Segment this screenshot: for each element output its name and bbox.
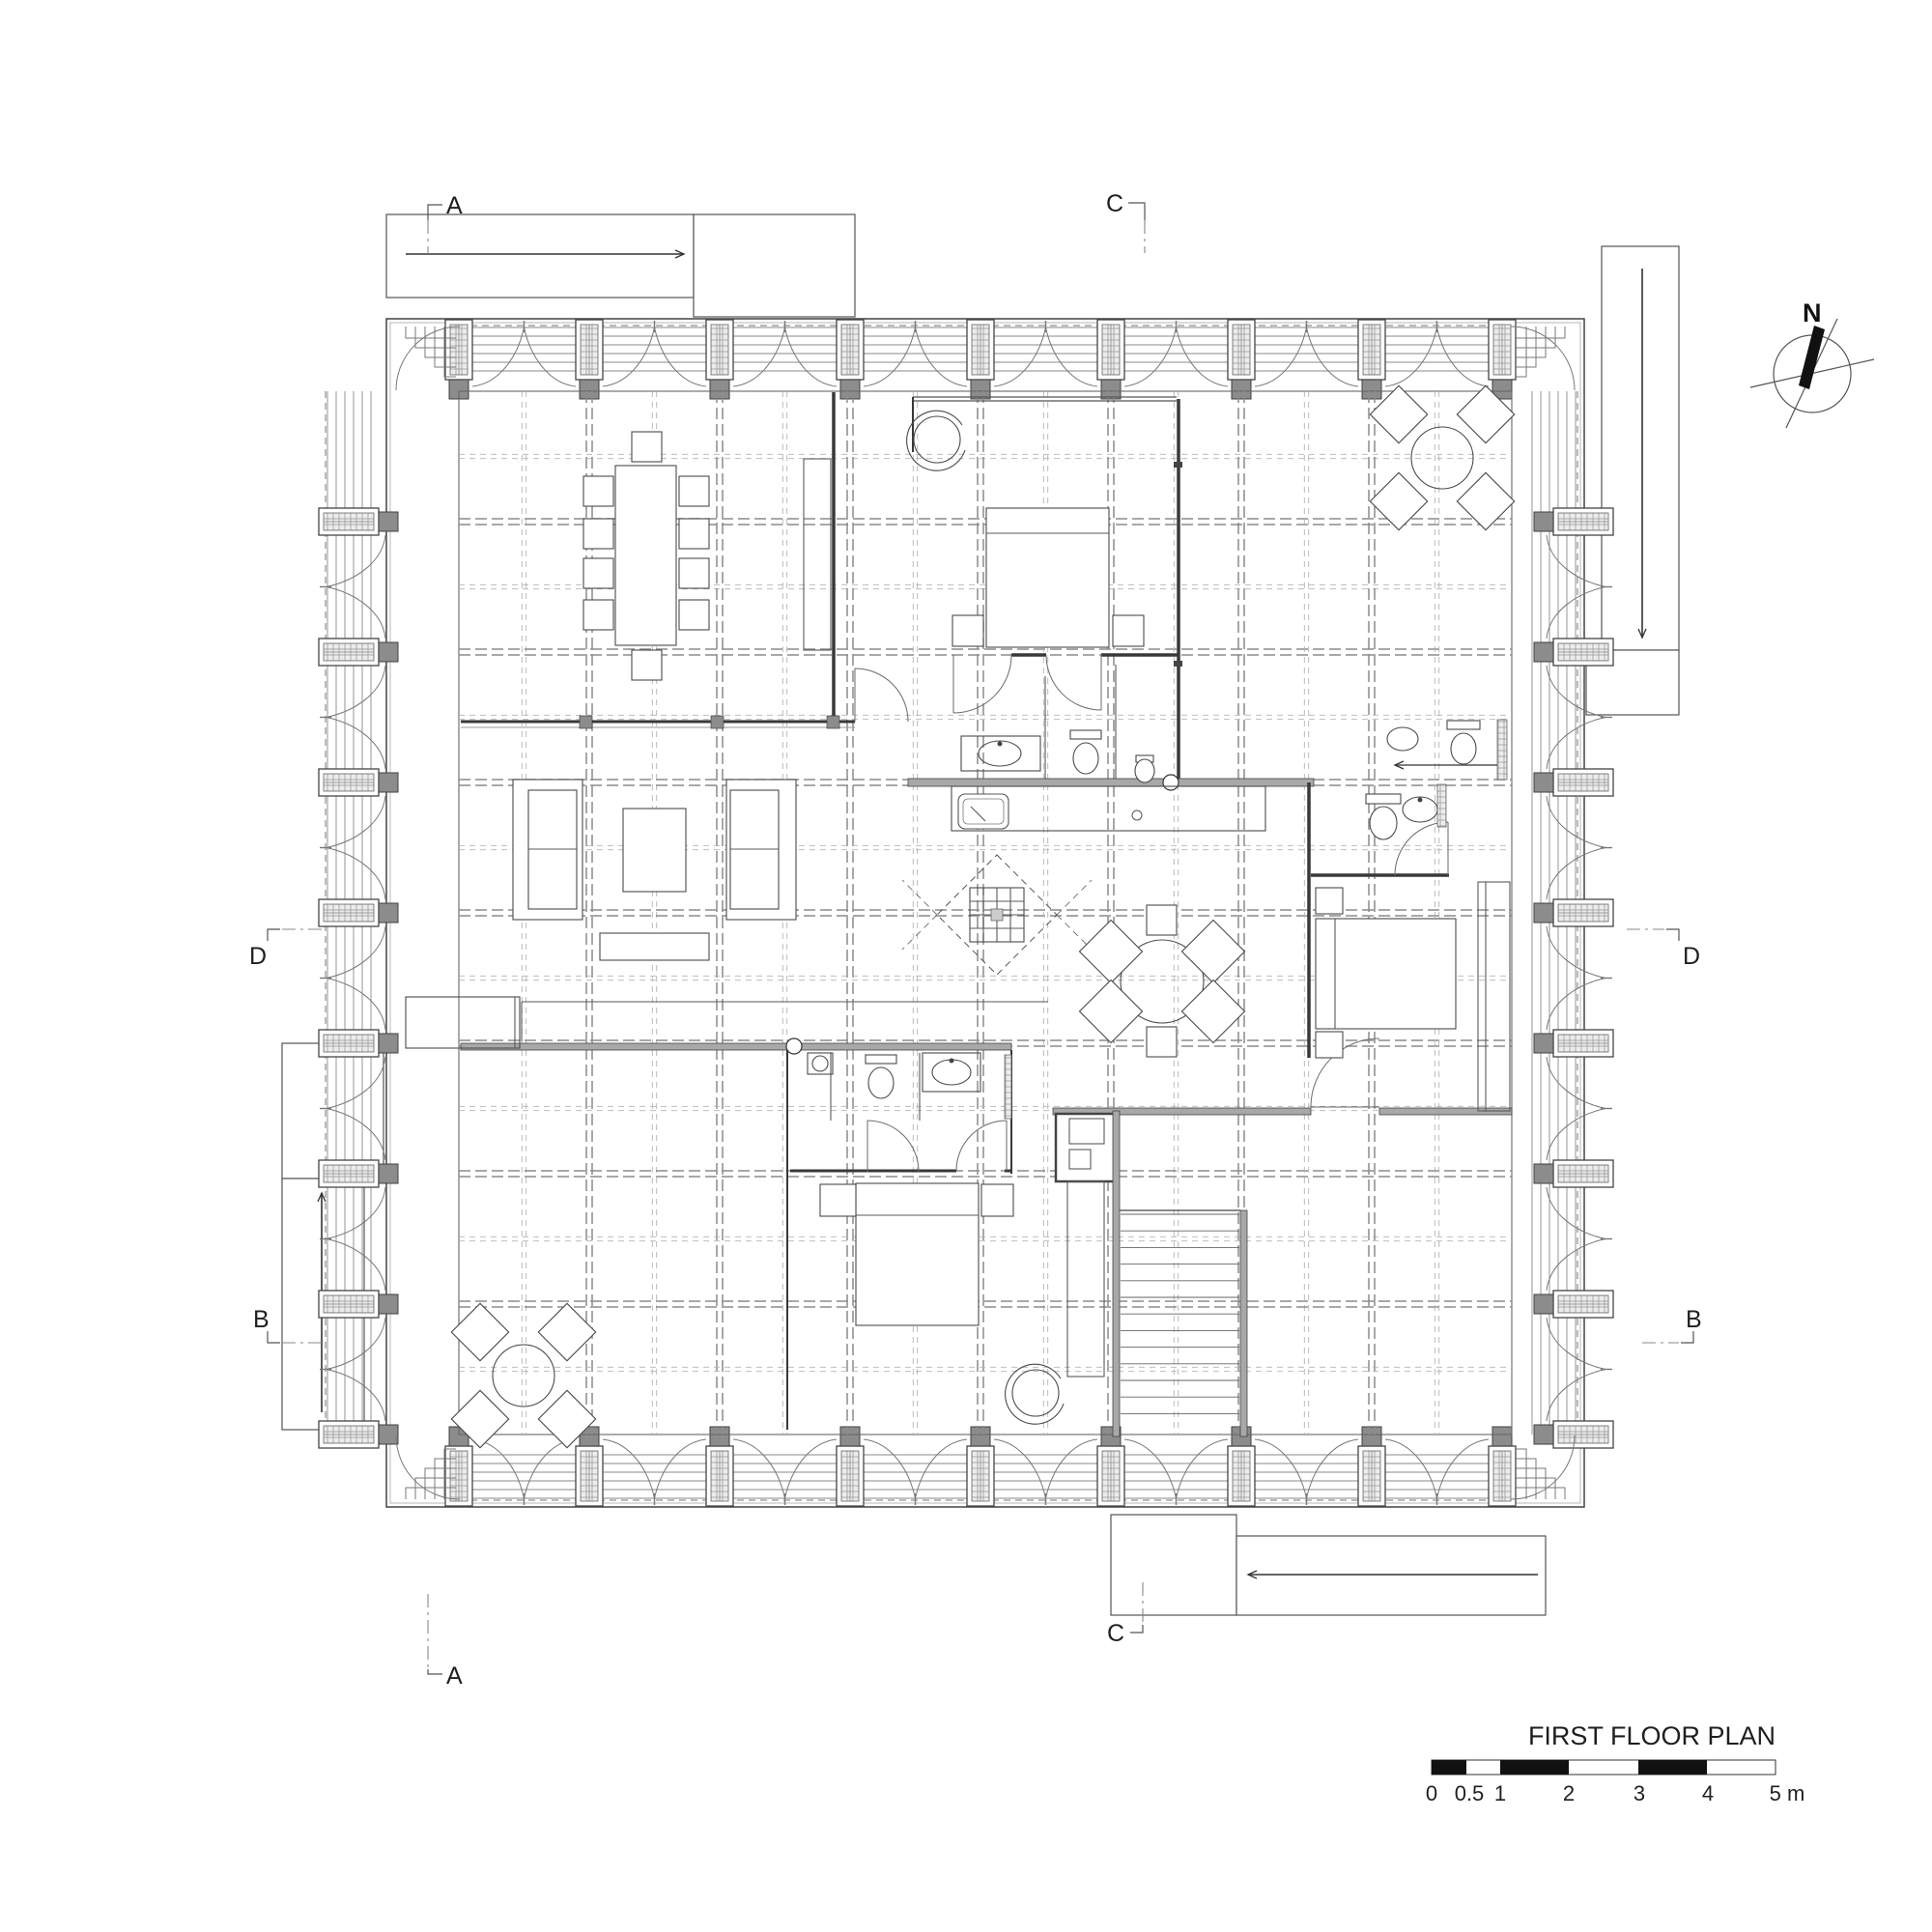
- section-label: D: [1683, 943, 1700, 970]
- engawa-post: [576, 1427, 603, 1506]
- column: [1163, 775, 1179, 790]
- engawa-post: [1489, 320, 1516, 399]
- engawa-post: [1228, 320, 1255, 399]
- engawa-post: [1534, 1291, 1613, 1318]
- engawa-post: [319, 899, 398, 926]
- toilet-tank: [1070, 730, 1101, 739]
- scale-tick-label: 0: [1426, 1781, 1437, 1805]
- toilet: [1451, 733, 1476, 764]
- chair: [632, 650, 662, 680]
- scale-bar: 0 0.5 1 2 3 4 5 m: [1426, 1760, 1804, 1805]
- section-marker-c-top: C: [1106, 190, 1145, 253]
- nightstand: [981, 1184, 1013, 1216]
- engawa-post: [576, 320, 603, 399]
- north-needle-icon: [1799, 326, 1825, 389]
- engawa-post: [1489, 1427, 1516, 1506]
- curtain-arc: [320, 796, 385, 899]
- floor-plan-sheet: A C D D B B A C: [0, 0, 1932, 1932]
- engawa-post: [319, 639, 398, 666]
- toilet-tank: [1366, 794, 1401, 804]
- engawa-post: [445, 320, 472, 399]
- engawa-post: [1534, 899, 1613, 926]
- scale-tick-label: 0.5: [1455, 1781, 1485, 1805]
- curtain-arc: [320, 666, 385, 769]
- north-compass: N: [1750, 298, 1874, 428]
- stair-wall-west: [1113, 1111, 1120, 1436]
- chair: [679, 519, 709, 549]
- engawa-post: [706, 320, 733, 399]
- section-label: C: [1106, 190, 1123, 217]
- engawa-post: [319, 1421, 398, 1448]
- wall-bedroom3-north: [461, 1043, 1011, 1050]
- scale-tick-label: 2: [1563, 1781, 1575, 1805]
- section-label: B: [1686, 1306, 1702, 1333]
- coffee-table: [623, 809, 686, 892]
- section-label: C: [1107, 1620, 1124, 1647]
- title-block: FIRST FLOOR PLAN 0 0.5 1 2 3 4 5 m: [1426, 1721, 1804, 1805]
- engawa-post: [445, 1427, 472, 1506]
- curtain-arc: [320, 535, 385, 639]
- toilet: [1073, 743, 1098, 774]
- nightstand: [1316, 1032, 1343, 1058]
- floor-plan-drawing: A C D D B B A C: [0, 0, 1932, 1932]
- column: [786, 1038, 802, 1054]
- drawing-title: FIRST FLOOR PLAN: [1528, 1721, 1776, 1750]
- stair-wall-east: [1240, 1210, 1247, 1436]
- chair: [679, 600, 709, 630]
- engawa-post: [319, 1160, 398, 1187]
- engawa-post: [967, 1427, 994, 1506]
- duct-shaft: [1005, 1055, 1011, 1119]
- scale-segment: [1432, 1760, 1466, 1775]
- chair: [632, 432, 662, 462]
- engawa-post: [1534, 1030, 1613, 1057]
- scale-tick-label: 4: [1702, 1781, 1714, 1805]
- engawa-post: [1534, 508, 1613, 535]
- engawa-post: [1228, 1427, 1255, 1506]
- section-marker-a-bottom: A: [428, 1594, 463, 1690]
- engawa-post: [1097, 1427, 1124, 1506]
- engawa-post: [319, 769, 398, 796]
- nightstand: [1113, 615, 1144, 646]
- chair: [1147, 905, 1177, 935]
- curtain-arc: [320, 926, 385, 1030]
- engawa-post: [837, 1427, 864, 1506]
- engawa-post: [319, 1291, 398, 1318]
- engawa-post: [837, 320, 864, 399]
- nightstand: [1316, 888, 1343, 914]
- deck-north: [386, 214, 855, 317]
- section-label: D: [249, 943, 267, 970]
- bed: [1316, 919, 1456, 1029]
- section-marker-d-left: D: [249, 929, 327, 970]
- section-label: A: [446, 1662, 463, 1690]
- bidet: [1135, 759, 1154, 782]
- chair: [583, 476, 613, 506]
- engawa-post: [1534, 1160, 1613, 1187]
- nightstand: [952, 615, 983, 646]
- chair: [583, 600, 613, 630]
- engawa-post: [1097, 320, 1124, 399]
- toilet-tank: [866, 1055, 896, 1064]
- scale-tick-label: 5 m: [1770, 1781, 1805, 1805]
- duct-shaft: [1497, 720, 1507, 780]
- section-label: A: [446, 192, 463, 219]
- deck-south: [1111, 1515, 1546, 1615]
- section-label: B: [253, 1306, 270, 1333]
- section-marker-d-right: D: [1627, 929, 1700, 970]
- scale-segment: [1638, 1760, 1707, 1775]
- engawa-post: [1358, 320, 1385, 399]
- engawa-post: [967, 320, 994, 399]
- nightstand: [820, 1184, 856, 1216]
- scale-tick-label: 1: [1494, 1781, 1506, 1805]
- scale-tick-label: 3: [1634, 1781, 1645, 1805]
- wall-kitchen-north: [908, 779, 1314, 786]
- engawa-post: [1358, 1427, 1385, 1506]
- north-label: N: [1803, 298, 1822, 327]
- toilet-tank: [1447, 721, 1480, 729]
- scale-segment: [1500, 1760, 1569, 1775]
- toilet: [868, 1067, 894, 1098]
- duct-shaft: [1437, 784, 1446, 827]
- bed: [856, 1183, 979, 1325]
- section-marker-b-right: B: [1642, 1306, 1702, 1343]
- chair: [679, 558, 709, 588]
- tv-board: [600, 933, 709, 960]
- stair-closet: [1056, 1114, 1118, 1181]
- chair: [583, 558, 613, 588]
- engawa-post: [319, 508, 398, 535]
- engawa-post: [1534, 639, 1613, 666]
- engawa-post: [319, 1030, 398, 1057]
- toilet: [1370, 807, 1397, 839]
- bed: [986, 508, 1109, 647]
- chair: [583, 519, 613, 549]
- chair: [679, 476, 709, 506]
- deck-west: [282, 1043, 384, 1430]
- dining-table: [615, 466, 676, 645]
- chair: [1147, 1027, 1177, 1057]
- engawa-post: [1534, 769, 1613, 796]
- engawa-post: [706, 1427, 733, 1506]
